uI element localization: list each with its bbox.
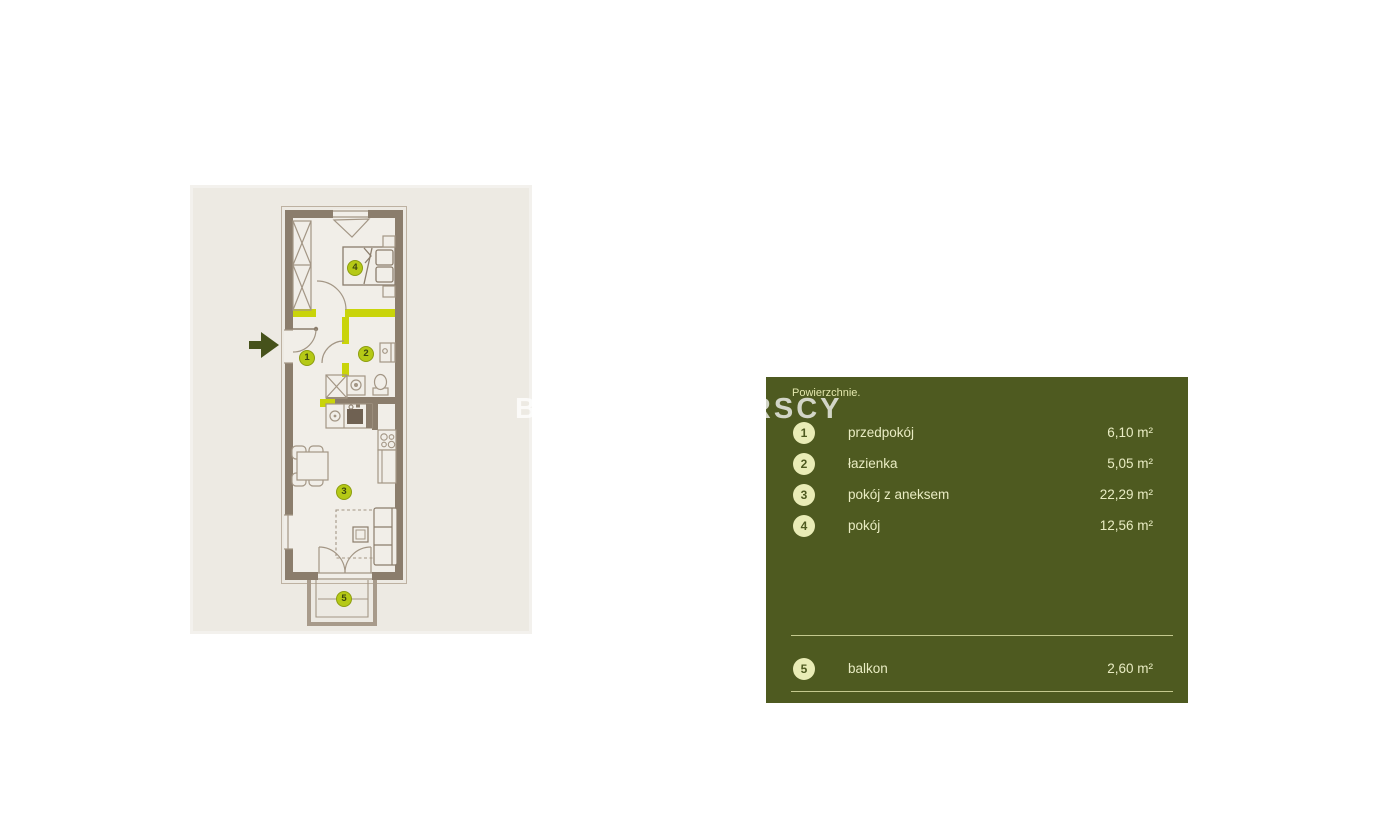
legend-number-badge: 4 [793, 515, 815, 537]
legend-number-badge: 2 [793, 453, 815, 475]
floor-plan-drawing [190, 185, 532, 634]
kitchen-tall-cabinet [378, 450, 396, 483]
legend-room-area: 5,05 m² [1107, 453, 1153, 475]
legend-number-badge: 1 [793, 422, 815, 444]
legend-room-label: łazienka [848, 453, 898, 475]
washbasin [380, 343, 395, 362]
plan-marker-2: 2 [358, 346, 374, 362]
floor-plan-card: 1 2 3 4 5 [190, 185, 532, 634]
legend-panel: Powierzchnie. 1 przedpokój 6,10 m² 2 łaz… [766, 377, 1188, 703]
legend-room-label: przedpokój [848, 422, 914, 444]
sofa [374, 508, 397, 565]
legend-title: Powierzchnie. [792, 387, 860, 399]
legend-room-label: pokój z aneksem [848, 484, 949, 506]
legend-number-badge: 5 [793, 658, 815, 680]
window-left [284, 515, 294, 549]
legend-room-label: pokój [848, 515, 880, 537]
plan-marker-3: 3 [336, 484, 352, 500]
plan-marker-5: 5 [336, 591, 352, 607]
legend-divider [791, 691, 1173, 692]
legend-row-lazienka: 2 łazienka 5,05 m² [766, 453, 1188, 475]
legend-row-pokoj: 4 pokój 12,56 m² [766, 515, 1188, 537]
plan-marker-4: 4 [347, 260, 363, 276]
legend-row-przedpokoj: 1 przedpokój 6,10 m² [766, 422, 1188, 444]
washing-machine [347, 376, 365, 395]
dining-set [292, 446, 328, 486]
legend-room-label: balkon [848, 658, 888, 680]
coffee-table [353, 527, 368, 542]
toilet [373, 375, 388, 396]
legend-room-area: 6,10 m² [1107, 422, 1153, 444]
legend-room-area: 2,60 m² [1107, 658, 1153, 680]
page: 1 2 3 4 5 Powierzchnie. 1 przedpokój 6,1… [0, 0, 1379, 824]
plan-marker-1: 1 [299, 350, 315, 366]
legend-room-area: 22,29 m² [1100, 484, 1153, 506]
legend-row-balkon: 5 balkon 2,60 m² [766, 658, 1188, 680]
legend-divider [791, 635, 1173, 636]
entrance-arrow-icon [249, 332, 279, 358]
legend-number-badge: 3 [793, 484, 815, 506]
hob [378, 430, 396, 450]
legend-room-area: 12,56 m² [1100, 515, 1153, 537]
kitchen-counter [326, 404, 372, 428]
legend-row-pokoj-z-aneksem: 3 pokój z aneksem 22,29 m² [766, 484, 1188, 506]
